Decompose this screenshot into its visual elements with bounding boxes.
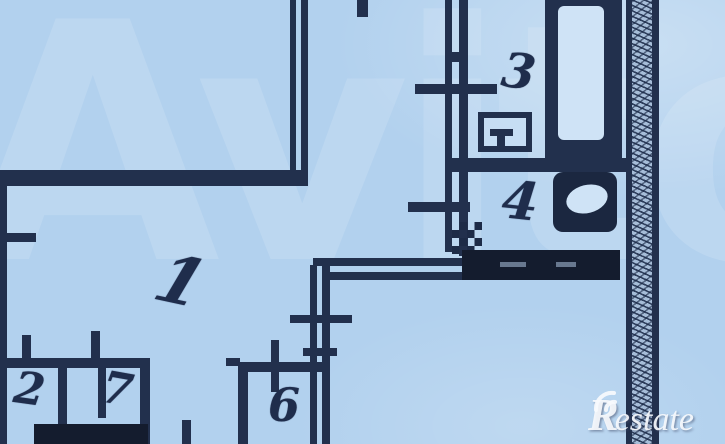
- wall-corridor-horizontal-inner: [323, 272, 463, 280]
- door-tick-corridor-lower: [303, 348, 337, 356]
- wall-corridor-horizontal-outer: [313, 258, 465, 266]
- wall-bath-left-inner: [459, 0, 468, 256]
- door-tick-bath-lower: [408, 202, 470, 212]
- threshold-scratch-a: [500, 262, 526, 267]
- wall-bath-connector: [445, 52, 468, 62]
- door-tick-bath-upper: [415, 84, 497, 94]
- door-tick-corridor-upper: [290, 315, 352, 323]
- bathtub-icon: [545, 0, 622, 158]
- room-label-6: 6: [268, 382, 300, 428]
- toilet-bowl: [563, 180, 611, 217]
- sink-faucet-stem: [497, 129, 505, 146]
- bathtub-basin: [558, 6, 604, 140]
- window-tick-a: [22, 335, 31, 362]
- restate-watermark: Restate: [588, 392, 694, 438]
- floor-plan-photo: Avito 2 7 6 1: [0, 0, 725, 444]
- wall-hatched-insulation: [632, 0, 652, 444]
- room-label-4: 4: [499, 174, 540, 229]
- room-label-2: 2: [11, 366, 47, 414]
- wall-top-edge-stub: [357, 0, 368, 17]
- wall-room6-left: [238, 372, 248, 444]
- wall-room1-right-upper-outer: [290, 0, 296, 181]
- room-label-7: 7: [98, 366, 136, 415]
- restate-logo-arcs-icon: [590, 388, 630, 412]
- sink-icon: [478, 112, 532, 152]
- toilet-icon: [553, 172, 617, 232]
- wall-room1-right-upper-inner: [301, 0, 308, 186]
- door-tick-left-wall: [0, 233, 36, 242]
- room-label-3: 3: [499, 46, 539, 98]
- wall-room1-top: [0, 170, 308, 186]
- window-mullion-a: [58, 368, 67, 428]
- wall-bath-left-outer: [445, 0, 452, 252]
- door-threshold-dark-band: [462, 250, 620, 280]
- threshold-scratch-b: [556, 262, 576, 267]
- wall-bath-toilet-divider: [452, 158, 630, 172]
- window-tick-b: [91, 331, 100, 362]
- wall-hatched-right-line: [652, 0, 659, 444]
- window-sill-dark-band: [34, 424, 148, 444]
- wall-left-exterior: [0, 186, 7, 444]
- door-jamb-bottom-stub: [182, 420, 191, 444]
